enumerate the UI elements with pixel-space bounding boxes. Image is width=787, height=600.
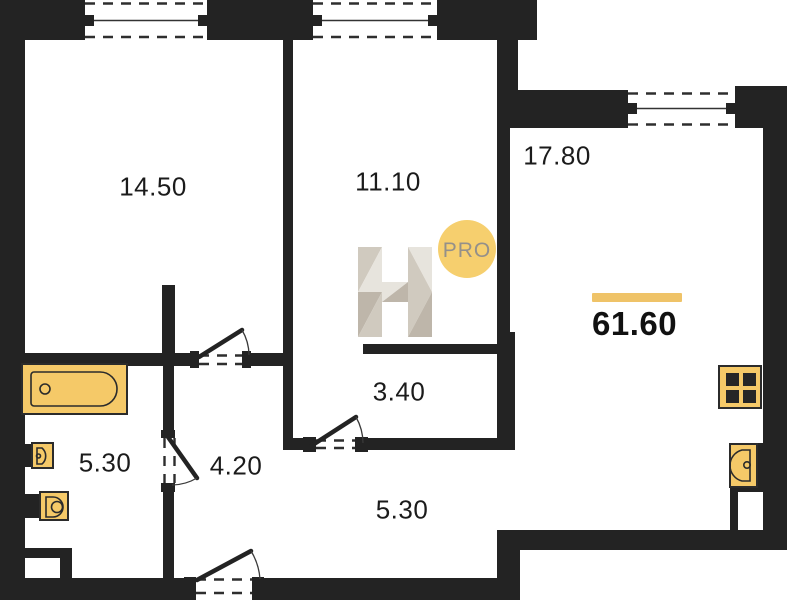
total-area-underline	[592, 293, 682, 302]
room-label-room: 11.10	[355, 167, 421, 198]
total-area: 61.60	[592, 293, 682, 343]
door-inner-hall	[303, 417, 368, 452]
room-label-bathroom: 5.30	[79, 448, 132, 479]
door-entrance	[184, 551, 264, 600]
watermark-pro-badge: PRO	[438, 220, 496, 278]
room-label-inner-hall: 3.40	[373, 377, 426, 408]
door-bedroom	[190, 330, 251, 368]
toilet-icon	[23, 492, 68, 520]
kitchen-sink-icon	[730, 444, 757, 487]
total-area-value: 61.60	[592, 305, 682, 343]
room-label-hall: 4.20	[210, 451, 263, 482]
bathtub-icon	[22, 364, 127, 414]
room-label-kitchen-living-room: 17.80	[523, 141, 591, 172]
stove-icon	[719, 366, 761, 408]
window-1	[85, 4, 207, 38]
window-2	[313, 4, 437, 38]
floor-plan: PRO 14.50 11.10 17.80 3.40 5.30 4.20 5.3…	[0, 0, 787, 600]
window-3	[628, 94, 735, 125]
room-label-corridor: 5.30	[376, 495, 429, 526]
room-label-bedroom: 14.50	[119, 172, 187, 203]
watermark-badge-text: PRO	[443, 239, 492, 262]
watermark-h-logo	[358, 247, 432, 337]
washbasin-icon	[25, 443, 53, 468]
door-bathroom	[161, 430, 197, 492]
